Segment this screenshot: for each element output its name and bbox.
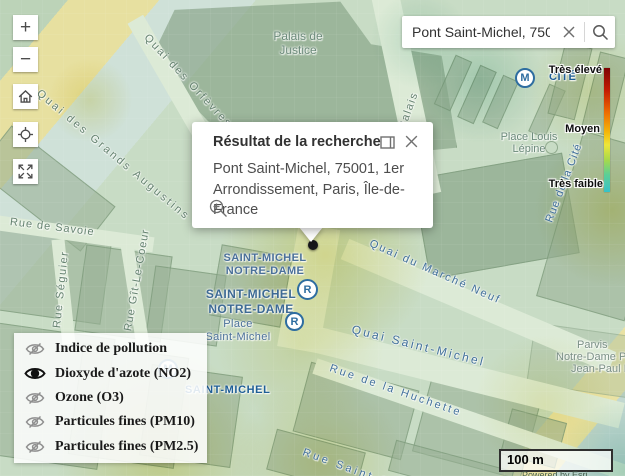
- layer-label: Particules fines (PM10): [55, 414, 195, 430]
- search-box: [402, 16, 615, 48]
- search-submit-button[interactable]: [585, 16, 615, 48]
- layer-row-ozone: Ozone (O3): [14, 390, 207, 406]
- locate-button[interactable]: [13, 122, 38, 147]
- layer-row-indice-pollution: Indice de pollution: [14, 341, 207, 357]
- home-icon: [16, 87, 35, 106]
- rer-marker: R: [285, 312, 304, 331]
- close-popup-button[interactable]: [401, 131, 421, 151]
- layer-label: Particules fines (PM2.5): [55, 439, 198, 455]
- plus-icon: +: [20, 18, 31, 37]
- eye-visible-icon[interactable]: [24, 366, 46, 381]
- fullscreen-button[interactable]: [13, 159, 38, 184]
- fountain-outline: [545, 141, 558, 154]
- legend-label-low: Très faible: [549, 178, 603, 190]
- layer-row-pm10: Particules fines (PM10): [14, 414, 207, 430]
- close-icon: [562, 25, 576, 39]
- minus-icon: −: [20, 50, 31, 69]
- legend-label-mid: Moyen: [565, 123, 600, 135]
- layer-row-pm25: Particules fines (PM2.5): [14, 439, 207, 455]
- clear-search-button[interactable]: [554, 16, 584, 48]
- layer-row-no2: Dioxyde d'azote (NO2): [14, 366, 207, 382]
- magnifier-plus-icon: [209, 199, 228, 218]
- layer-list-panel: Indice de pollution Dioxyde d'azote (NO2…: [14, 333, 207, 463]
- dock-icon: [380, 136, 395, 149]
- crosshair-icon: [16, 125, 35, 144]
- eye-hidden-icon[interactable]: [24, 391, 46, 405]
- pollution-legend-gradient: [604, 68, 610, 192]
- search-input[interactable]: [402, 24, 554, 40]
- eye-hidden-icon[interactable]: [24, 342, 46, 356]
- building-block: [209, 244, 292, 327]
- popup-title: Résultat de la recherche: [213, 134, 381, 150]
- scale-bar: 100 m: [499, 449, 613, 472]
- popup-result-text: Pont Saint-Michel, 75001, 1er Arrondisse…: [213, 159, 413, 221]
- zoom-in-button[interactable]: +: [13, 15, 38, 40]
- app-window: Palais de Justice Quai des Orfèvres Quai…: [0, 0, 625, 476]
- layer-label: Ozone (O3): [55, 390, 124, 406]
- layer-label: Dioxyde d'azote (NO2): [55, 366, 191, 382]
- legend-label-high: Très élevé: [549, 64, 602, 76]
- zoom-to-result-button[interactable]: [206, 196, 230, 220]
- expand-icon: [16, 162, 35, 181]
- metro-marker: M: [515, 68, 535, 88]
- rer-marker: R: [297, 279, 318, 300]
- popup-tail: [299, 227, 323, 242]
- eye-hidden-icon[interactable]: [24, 415, 46, 429]
- home-button[interactable]: [13, 84, 38, 109]
- zoom-out-button[interactable]: −: [13, 47, 38, 72]
- close-icon: [404, 134, 419, 149]
- eye-hidden-icon[interactable]: [24, 440, 46, 454]
- search-result-popup: Résultat de la recherche Pont Saint-Mich…: [192, 122, 433, 228]
- scale-bar-label: 100 m: [507, 452, 544, 467]
- dock-popup-button[interactable]: [377, 132, 397, 152]
- layer-label: Indice de pollution: [55, 341, 167, 357]
- search-icon: [592, 24, 609, 41]
- attribution-text: Powered by Esri: [522, 470, 588, 476]
